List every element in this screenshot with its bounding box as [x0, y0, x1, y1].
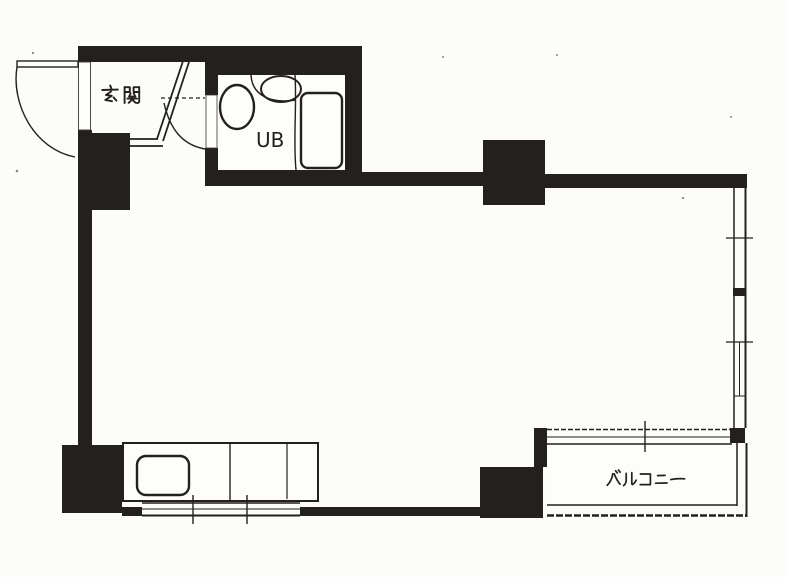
genkan-char-1 [102, 86, 118, 102]
entry-door-leaf [17, 61, 78, 67]
wall-ub-left-upper [205, 62, 218, 95]
wall-ub-right [345, 46, 362, 186]
hall-partition-diagonal-inner [163, 62, 189, 141]
speck [730, 116, 732, 118]
kitchen-counter [123, 443, 318, 501]
ub-door-opening [206, 95, 217, 148]
hall-door-swing-arc [164, 103, 205, 149]
balcony-char-5 [671, 479, 685, 480]
wall-bottom-a [122, 507, 142, 516]
ub-floor [218, 75, 345, 170]
speck [682, 197, 684, 199]
pillar-balcony-left [480, 467, 543, 518]
balcony-area [547, 421, 747, 517]
pillar-bottom-left [62, 445, 122, 513]
pillar-left [80, 133, 130, 210]
wall-ub-top-strip [205, 62, 362, 75]
entry-door-swing-arc [16, 67, 75, 157]
kitchen-area [123, 443, 318, 524]
speck [556, 54, 558, 56]
wall-top-right [545, 174, 747, 188]
genkan-label [102, 86, 139, 104]
ub-label: UB [256, 128, 284, 152]
wall-ub-bottom [205, 170, 362, 186]
wall-top-left [78, 46, 362, 62]
wall-balcony-right-block [730, 428, 745, 443]
speck [442, 56, 444, 58]
wall-top-middle [362, 172, 485, 186]
genkan-char-2 [125, 87, 140, 103]
floor-plan-drawing: UB [0, 0, 787, 577]
speck [32, 52, 34, 54]
pillar-top [483, 140, 545, 205]
entry-door-opening [79, 62, 91, 130]
floor-plan-page: UB [0, 0, 787, 577]
wall-bottom-b [300, 507, 480, 516]
unit-bath-area [218, 75, 345, 170]
window-mullion-block [733, 288, 745, 296]
right-window [726, 188, 753, 428]
hall-partition-diagonal-outer [157, 61, 183, 139]
speck [16, 170, 19, 173]
ub-divider-line [295, 75, 296, 170]
wall-balcony-left-strip [534, 428, 547, 467]
